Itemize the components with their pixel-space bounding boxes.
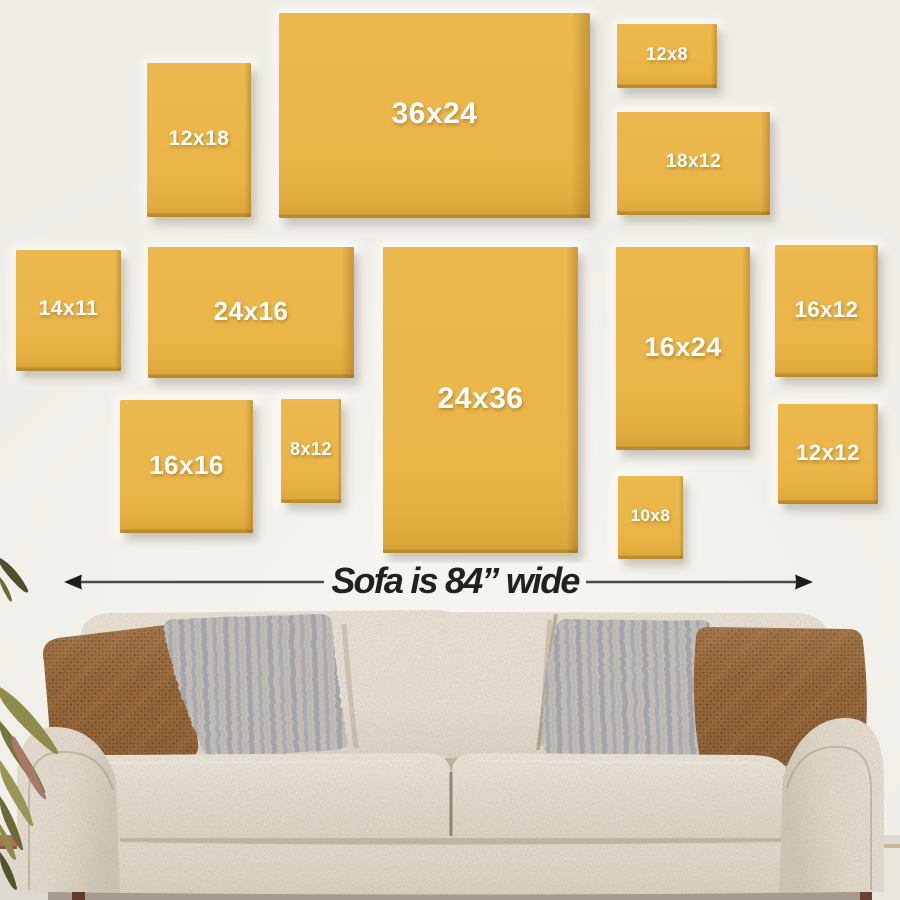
- svg-text:Sofa is 84” wide: Sofa is 84” wide: [331, 560, 580, 601]
